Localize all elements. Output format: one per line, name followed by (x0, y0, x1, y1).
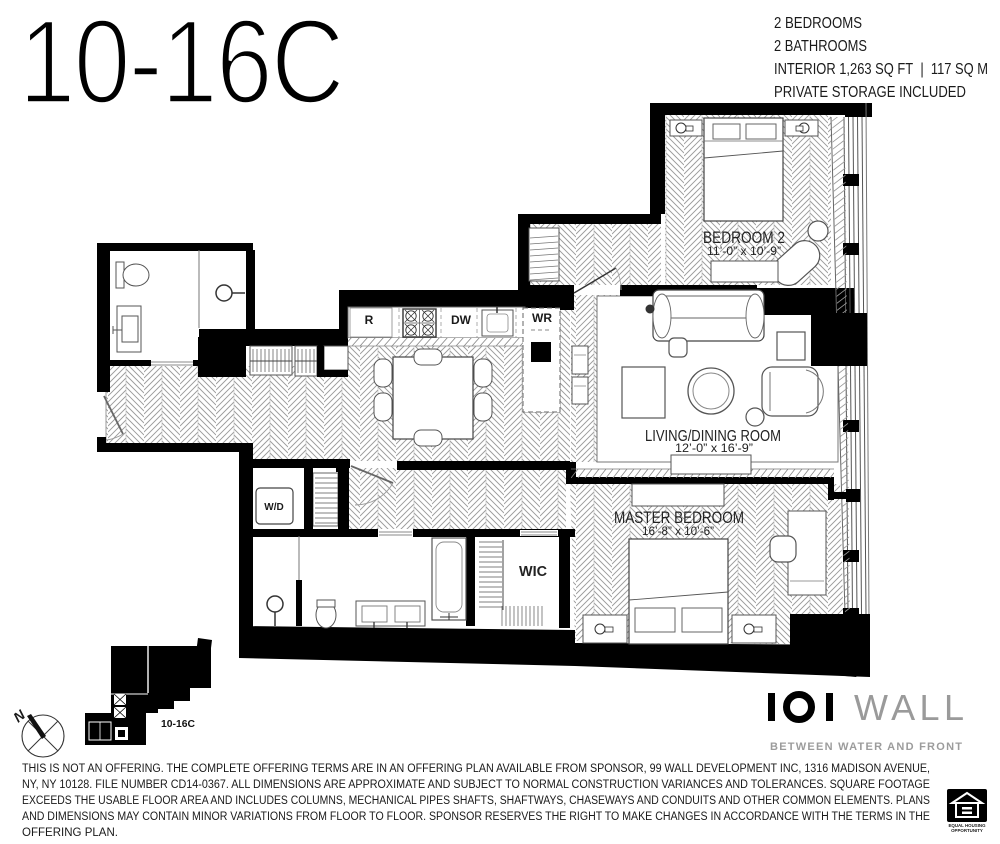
svg-text:R: R (365, 313, 374, 327)
svg-text:THIS IS NOT AN OFFERING. THE C: THIS IS NOT AN OFFERING. THE COMPLETE OF… (22, 761, 930, 775)
svg-text:WIC: WIC (519, 564, 548, 580)
svg-text:PRIVATE STORAGE INCLUDED: PRIVATE STORAGE INCLUDED (774, 84, 966, 101)
svg-text:OPPORTUNITY: OPPORTUNITY (951, 828, 983, 833)
svg-text:WALL: WALL (854, 687, 964, 728)
svg-text:2 BEDROOMS: 2 BEDROOMS (774, 15, 862, 32)
svg-text:EXCEEDS THE USABLE FLOOR AREA: EXCEEDS THE USABLE FLOOR AREA AND INCLUD… (22, 793, 930, 807)
svg-text:10-16C: 10-16C (161, 718, 195, 730)
svg-text:AND DIMENSIONS MAY CONTAIN MIN: AND DIMENSIONS MAY CONTAIN MINOR VARIATI… (22, 809, 930, 823)
svg-text:10-16C: 10-16C (19, 0, 343, 129)
svg-text:BETWEEN WATER AND FRONT: BETWEEN WATER AND FRONT (770, 741, 962, 753)
svg-text:MASTER BEDROOM: MASTER BEDROOM (614, 509, 744, 527)
svg-text:11’-0” x 10’-9”: 11’-0” x 10’-9” (707, 244, 781, 258)
svg-text:INTERIOR 1,263 SQ FT | 117 S: INTERIOR 1,263 SQ FT | 117 SQ M (774, 61, 988, 78)
svg-text:OFFERING PLAN.: OFFERING PLAN. (22, 825, 118, 839)
svg-text:16’-8” x 10’-6”: 16’-8” x 10’-6” (642, 526, 714, 538)
svg-text:12’-0” x 16’-9”: 12’-0” x 16’-9” (675, 443, 753, 455)
svg-text:WR: WR (532, 311, 552, 325)
svg-text:W/D: W/D (264, 502, 283, 513)
svg-text:2 BATHROOMS: 2 BATHROOMS (774, 38, 867, 55)
svg-text:NY, NY 10128. FILE NUMBER CD14: NY, NY 10128. FILE NUMBER CD14-0367. ALL… (22, 777, 930, 791)
svg-text:DW: DW (451, 313, 472, 327)
